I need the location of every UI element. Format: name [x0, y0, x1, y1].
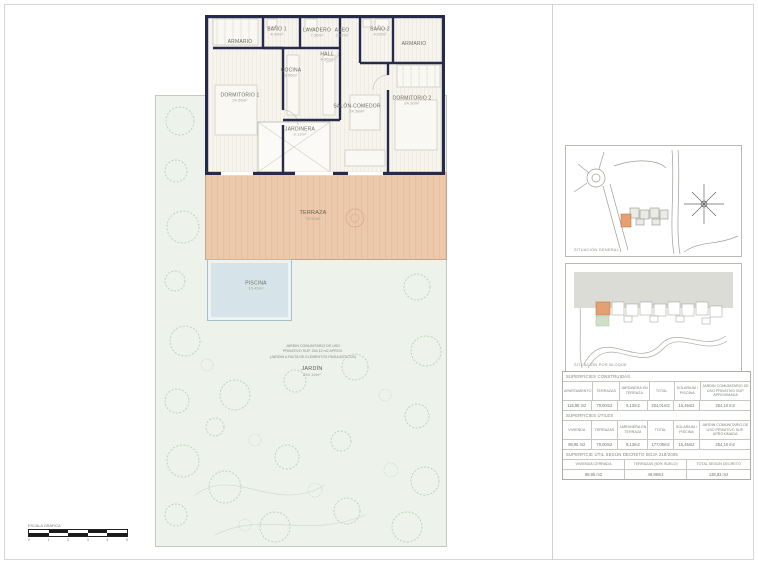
highlighted-unit: [621, 214, 631, 227]
highlighted-block: [596, 302, 610, 315]
decree-header-row: VIVIENDA CERRADA TERRAZAS (50% SUELO) TO…: [563, 460, 750, 470]
useful-values-row: 88,95 m2 79,00m2 9,13m2 177,08m2 15,45m2…: [563, 440, 750, 450]
scale-bar-icon: [28, 529, 128, 537]
situation-general-caption: SITUACIÓN GENERAL: [574, 248, 619, 252]
room-label-jardinera: JARDINERA9.13m²: [285, 127, 315, 138]
situation-block-map: SITUACIÓN POR BLOQUE: [565, 263, 742, 372]
room-label-cocina: COCINA9.56m²: [281, 68, 302, 79]
garden-label: JARDÍN254.10m²: [301, 366, 322, 378]
decree-values-row: 88,95 m2 49,88m2 138,83 m2: [563, 470, 750, 479]
scale-ticks: 012345: [28, 538, 128, 542]
situation-general-drawing: [566, 146, 741, 256]
useful-surfaces-title: SUPERFICIES ÚTILES: [563, 411, 750, 421]
constructed-header-row: APARTAMENTO TERRAZAS JARDINERA EN TERRAZ…: [563, 382, 750, 401]
useful-header-row: VIVIENDA TERRAZAS JARDINERA EN TERRAZA T…: [563, 421, 750, 440]
room-label-armario-2: ARMARIO: [402, 41, 427, 47]
situation-general-map: SITUACIÓN GENERAL: [565, 145, 742, 257]
room-label-armario-1: ARMARIO: [228, 39, 253, 45]
constructed-values-row: 115,88 m2 79,00m2 9,13m2 204,01m2 15,45m…: [563, 401, 750, 411]
situation-block-caption: SITUACIÓN POR BLOQUE: [574, 363, 627, 367]
room-label-dormitorio-2: DORMITORIO 224.30m²: [393, 96, 432, 107]
graphic-scale: ESCALA GRÁFICA 012345: [28, 524, 128, 542]
decree-surfaces-title: SUPERFICIE ÚTIL SEGÚN DECRETO BOJA 218/2…: [563, 450, 750, 460]
room-label-hall: HALL4.36m²: [320, 52, 333, 63]
compass-icon: [684, 184, 724, 224]
room-label-dormitorio-1: DORMITORIO 124.55m²: [221, 93, 260, 104]
pool-label: PISCINA15.45m²: [245, 281, 266, 292]
room-label-aseo: ASEO2.27m²: [335, 28, 350, 39]
panel-divider: [552, 4, 553, 560]
room-label-lavadero: LAVADERO7.36m²: [303, 28, 331, 39]
scale-label: ESCALA GRÁFICA: [28, 524, 128, 528]
room-label-bano-1: BAÑO 14.43m²: [267, 27, 287, 38]
garden-note: JARDIN COMUNITARIO DE USO PRIVATIVO SUP.…: [270, 344, 356, 360]
drawing-sheet: ARMARIO BAÑO 14.43m² LAVADERO7.36m² ASEO…: [0, 0, 758, 564]
room-label-bano-2: BAÑO 24.20m²: [370, 27, 390, 38]
surfaces-table: SUPERFICIES CONSTRUIDAS APARTAMENTO TERR…: [562, 371, 751, 480]
constructed-surfaces-title: SUPERFICIES CONSTRUIDAS: [563, 372, 750, 382]
situation-block-drawing: [566, 264, 741, 371]
room-label-salon-comedor: SALÓN-COMEDOR24.58m²: [333, 104, 380, 115]
terrace-label: TERRAZA79.00m²: [299, 210, 326, 222]
